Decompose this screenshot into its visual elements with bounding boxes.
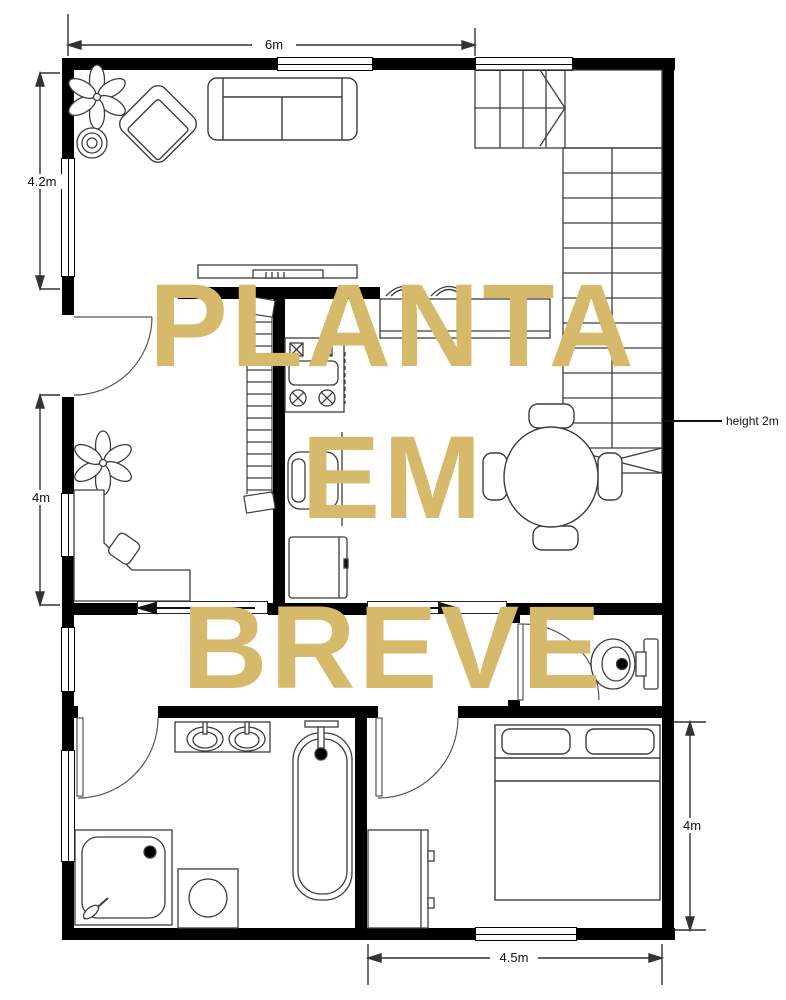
bathroom-door — [77, 718, 158, 798]
armchair — [116, 82, 201, 167]
dim-left-upper: 4.2m — [18, 174, 66, 189]
dim-bottom-width: 4.5m — [490, 950, 538, 965]
bedroom-door — [376, 718, 458, 798]
dim-right-height: 4m — [675, 818, 709, 833]
floor-plan-canvas: 6m 4.2m 4m 4m 4.5m height 2m PLANTA EM B… — [0, 0, 786, 1000]
bathtub — [293, 721, 352, 900]
dim-top-width: 6m — [252, 37, 296, 52]
double-sink — [175, 722, 270, 752]
watermark-line-1: PLANTA — [0, 267, 786, 385]
dresser — [368, 830, 434, 928]
washing-machine — [178, 869, 238, 928]
watermark-line-2: EM — [0, 419, 786, 537]
plant-living-icon — [66, 65, 129, 129]
bed — [495, 725, 660, 900]
sofa — [208, 78, 357, 140]
shower — [75, 830, 172, 925]
watermark-line-3: BREVE — [0, 589, 786, 707]
record-player-icon — [77, 128, 107, 158]
